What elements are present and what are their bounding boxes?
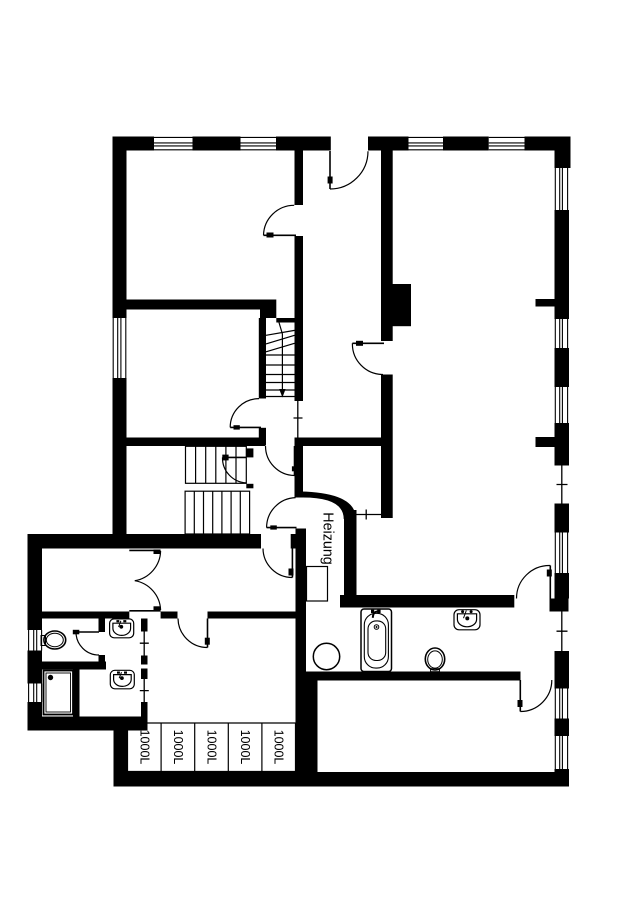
svg-text:1000L: 1000L — [137, 730, 151, 765]
svg-text:Heizung: Heizung — [320, 512, 336, 565]
svg-text:1000L: 1000L — [272, 730, 286, 765]
svg-text:1000L: 1000L — [238, 730, 252, 765]
svg-text:1000L: 1000L — [205, 730, 219, 765]
svg-text:1000L: 1000L — [171, 730, 185, 765]
